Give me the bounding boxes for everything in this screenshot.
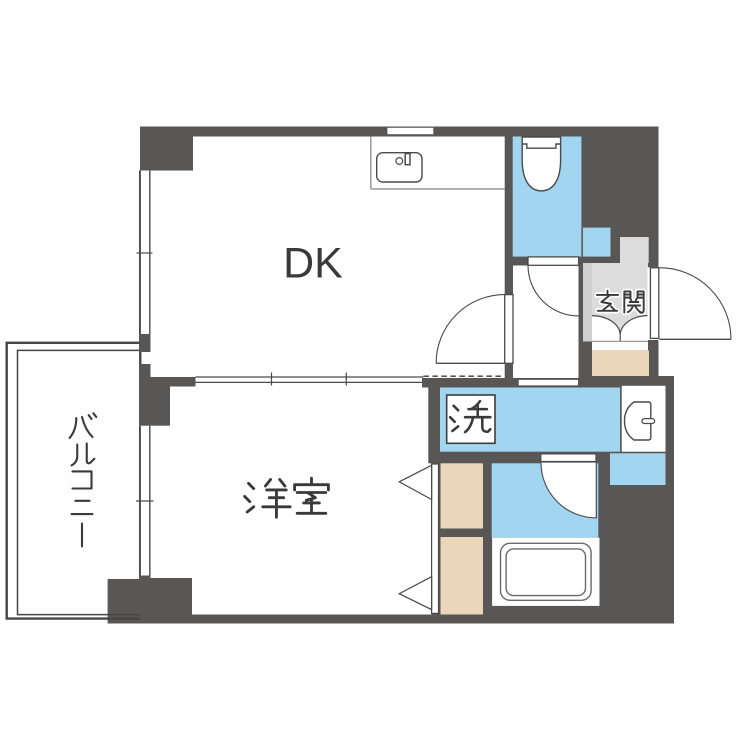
svg-text:DK: DK (283, 240, 343, 288)
